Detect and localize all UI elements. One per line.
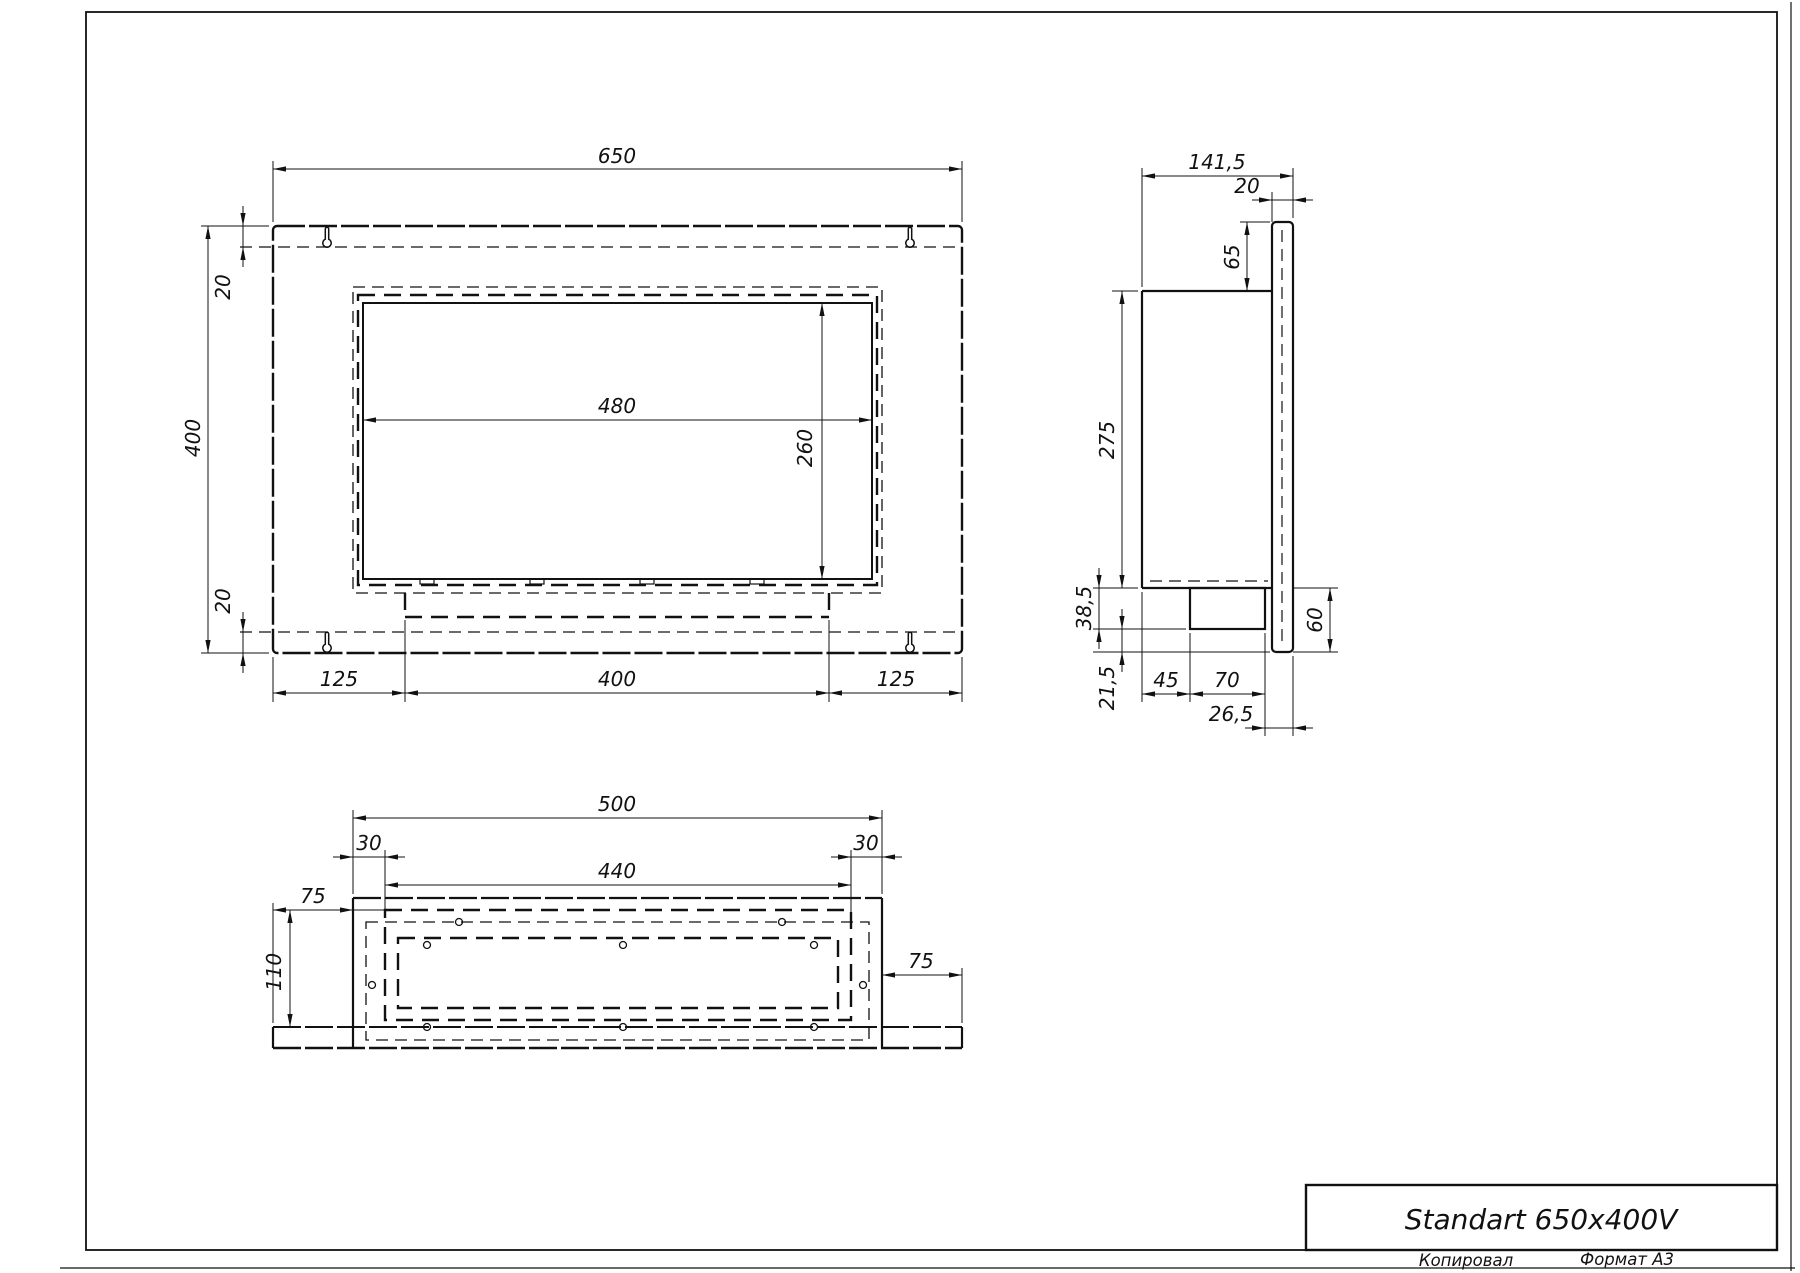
dim-440-arrow bbox=[385, 882, 398, 887]
keyhole-slot-bottom-right bbox=[906, 632, 914, 652]
dim-30-right-arrow bbox=[838, 854, 851, 859]
dim-45-label: 45 bbox=[1153, 668, 1178, 692]
dim-38-5-arrow bbox=[1096, 629, 1101, 642]
dim-30-left-arrow bbox=[340, 854, 353, 859]
dim-20-bottom-arrow bbox=[240, 653, 245, 666]
screw-hole bbox=[811, 942, 818, 949]
dim-30-right-arrow bbox=[882, 854, 895, 859]
dim-30-left-label: 30 bbox=[356, 831, 381, 855]
dim-500-arrow bbox=[869, 815, 882, 820]
dim-75-left-label: 75 bbox=[300, 884, 325, 908]
keyhole-slot-top-right bbox=[906, 227, 914, 247]
dim-141-5-arrow bbox=[1280, 173, 1293, 178]
dim-70-arrow bbox=[1190, 691, 1203, 696]
dim-20-plate-label: 20 bbox=[1234, 174, 1259, 198]
dim-75-left-arrow bbox=[340, 907, 353, 912]
dim-110-arrow bbox=[287, 1014, 292, 1027]
bottom-burner-outer bbox=[385, 910, 851, 1020]
dim-500-arrow bbox=[353, 815, 366, 820]
dim-20-top-arrow bbox=[240, 247, 245, 260]
front-outer-panel bbox=[273, 226, 962, 653]
screw-hole bbox=[620, 942, 627, 949]
dim-141-5-arrow bbox=[1142, 173, 1155, 178]
dim-21-5-arrow bbox=[1119, 616, 1124, 629]
dim-75-left-arrow bbox=[273, 907, 286, 912]
side-wall-plate bbox=[1272, 222, 1293, 652]
technical-drawing: Standart 650x400VКопировалФормат А365040… bbox=[0, 0, 1800, 1273]
dim-21-5-label: 21,5 bbox=[1095, 666, 1119, 711]
dim-75-right-label: 75 bbox=[908, 949, 933, 973]
sheet-frame bbox=[86, 12, 1777, 1250]
dim-45-arrow bbox=[1142, 691, 1155, 696]
dim-400-burner-label: 400 bbox=[598, 667, 636, 691]
dim-500-label: 500 bbox=[598, 792, 636, 816]
bottom-hidden-inner-wall bbox=[366, 922, 869, 1040]
dim-60-arrow bbox=[1327, 588, 1332, 601]
dim-70-arrow bbox=[1252, 691, 1265, 696]
dim-260-label: 260 bbox=[793, 429, 817, 467]
dim-125-right-arrow bbox=[829, 690, 842, 695]
dim-110-label: 110 bbox=[262, 953, 286, 991]
dim-60-arrow bbox=[1327, 639, 1332, 652]
dim-20-plate-arrow bbox=[1259, 197, 1272, 202]
dim-480-arrow bbox=[859, 417, 872, 422]
dim-400-height-label: 400 bbox=[181, 419, 205, 457]
dim-26-5-arrow bbox=[1293, 725, 1306, 730]
dim-275-label: 275 bbox=[1095, 421, 1119, 459]
footer-copied-label: Копировал bbox=[1419, 1251, 1514, 1270]
dim-125-right-label: 125 bbox=[877, 667, 915, 691]
dim-275-arrow bbox=[1119, 575, 1124, 588]
footer-format-label: Формат А3 bbox=[1580, 1250, 1674, 1269]
screw-hole bbox=[424, 942, 431, 949]
dim-21-5-arrow bbox=[1119, 652, 1124, 665]
dim-400-burner-arrow bbox=[816, 690, 829, 695]
dim-75-right-arrow bbox=[882, 972, 895, 977]
dim-26-5-label: 26,5 bbox=[1209, 702, 1254, 726]
dim-75-right-arrow bbox=[949, 972, 962, 977]
keyhole-slot-top-left bbox=[323, 227, 331, 247]
dim-110-arrow bbox=[287, 910, 292, 923]
dim-65-arrow bbox=[1244, 222, 1249, 235]
dim-480-label: 480 bbox=[598, 394, 636, 418]
dim-650-label: 650 bbox=[598, 144, 636, 168]
dim-65-label: 65 bbox=[1220, 244, 1244, 269]
dim-30-right-label: 30 bbox=[853, 831, 878, 855]
dim-125-right-arrow bbox=[949, 690, 962, 695]
dim-38-5-arrow bbox=[1096, 575, 1101, 588]
dim-650-arrow bbox=[949, 166, 962, 171]
dim-20-top-label: 20 bbox=[211, 274, 235, 299]
title-block-title: Standart 650x400V bbox=[1405, 1203, 1679, 1236]
dim-400-height-arrow bbox=[205, 640, 210, 653]
screw-hole bbox=[369, 982, 376, 989]
dim-38-5-label: 38,5 bbox=[1072, 586, 1096, 631]
bottom-burner-inner bbox=[398, 938, 838, 1008]
dim-20-plate-arrow bbox=[1293, 197, 1306, 202]
dim-20-bottom-arrow bbox=[240, 619, 245, 632]
dim-65-arrow bbox=[1244, 278, 1249, 291]
dim-26-5-arrow bbox=[1252, 725, 1265, 730]
dim-260-arrow bbox=[819, 303, 824, 316]
dim-30-left-arrow bbox=[385, 854, 398, 859]
screw-hole bbox=[860, 982, 867, 989]
dim-260-arrow bbox=[819, 566, 824, 579]
side-burner-protrusion bbox=[1190, 588, 1265, 629]
dim-60-label: 60 bbox=[1303, 607, 1327, 632]
dim-275-arrow bbox=[1119, 291, 1124, 304]
dim-20-top-arrow bbox=[240, 213, 245, 226]
drawing-sheet: Standart 650x400VКопировалФормат А365040… bbox=[0, 0, 1800, 1273]
dim-440-arrow bbox=[838, 882, 851, 887]
dim-400-burner-arrow bbox=[405, 690, 418, 695]
dim-20-bottom-label: 20 bbox=[211, 588, 235, 613]
dim-70-label: 70 bbox=[1214, 668, 1239, 692]
dim-141-5-label: 141,5 bbox=[1188, 150, 1245, 174]
keyhole-slot-bottom-left bbox=[323, 632, 331, 652]
dim-125-left-arrow bbox=[273, 690, 286, 695]
dim-45-arrow bbox=[1177, 691, 1190, 696]
dim-650-arrow bbox=[273, 166, 286, 171]
dim-125-left-label: 125 bbox=[320, 667, 358, 691]
dim-480-arrow bbox=[363, 417, 376, 422]
dim-440-label: 440 bbox=[598, 859, 636, 883]
dim-125-left-arrow bbox=[392, 690, 405, 695]
dim-400-height-arrow bbox=[205, 226, 210, 239]
